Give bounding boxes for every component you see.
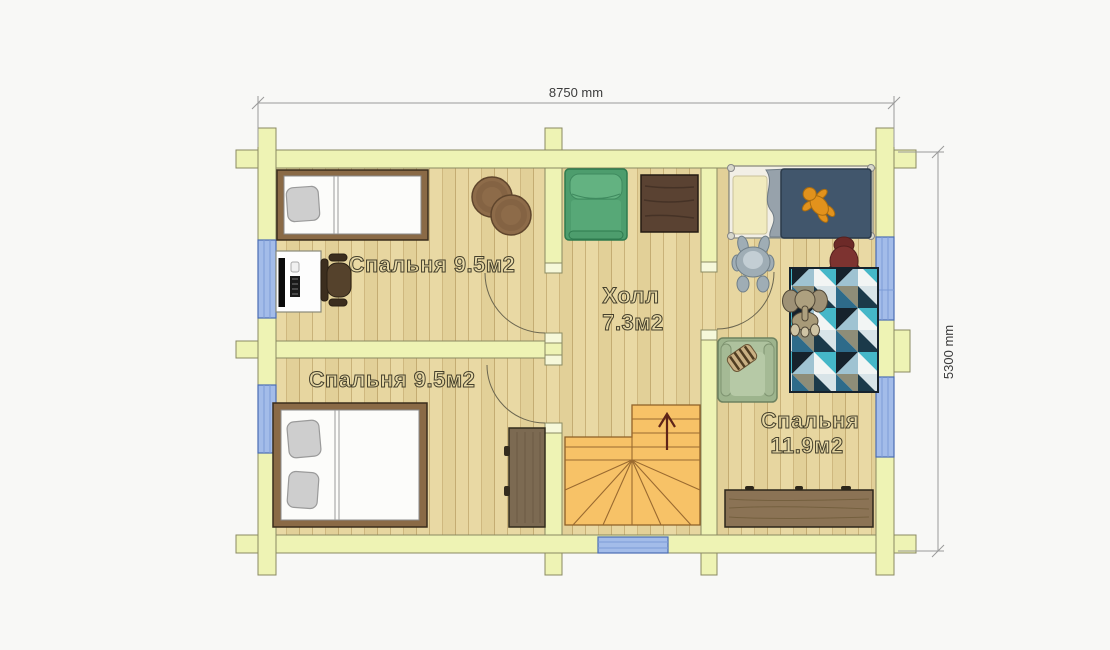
floor-plan-drawing: Спальня 9.5м2 Спальня 9.5м2 Холл 7.3м2 С… [0,0,1110,650]
log-end-left [236,341,258,358]
sideboard [725,486,873,527]
sideboard-knob [841,486,851,490]
room-label-bedroom-top-left: Спальня 9.5м2 [349,252,516,277]
room-label-bedroom-bottom-left: Спальня 9.5м2 [309,367,476,392]
yellow-pillow [733,176,767,234]
green-armchair [565,169,627,240]
sideboard-knob [795,486,803,490]
single-bed [277,170,428,240]
sage-armchair [718,338,777,402]
log-end-bottom-2 [701,553,717,575]
bed-pillow [286,186,320,222]
dimension-width-label: 8750 mm [549,85,603,100]
interior-wall-a1 [545,168,562,263]
child-bed [728,165,875,240]
log-end-bottom-1 [545,553,562,575]
room-label-hall-name: Холл [602,283,659,308]
room-label-bedroom-right-area: 11.9м2 [770,433,843,458]
interior-wall-a3 [545,433,562,535]
window-bottom [598,537,668,553]
wardrobe-handle [504,446,510,456]
interior-wall-c2 [701,340,717,535]
log-end-top [545,128,562,150]
dark-wood-table [641,175,698,232]
keyboard [290,276,300,297]
wardrobe [504,428,545,527]
sideboard-knob [745,486,754,490]
mouse [291,262,299,272]
room-label-bedroom-right-name: Спальня [761,408,860,433]
window-left-1 [258,240,276,318]
bed-pillow [287,471,319,509]
exterior-wall-bottom [236,535,916,553]
wardrobe-handle [504,486,510,496]
interior-wall-c1 [701,168,717,262]
interior-wall-b [276,341,545,358]
dimension-height-label: 5300 mm [941,325,956,379]
desk-with-computer [276,251,321,312]
monitor [279,258,286,307]
interior-wall-a2 [545,343,562,355]
room-label-hall-area: 7.3м2 [602,310,664,335]
bed-pillow [286,420,321,459]
log-end-right [894,330,910,372]
double-bed [273,403,427,527]
floor-plan-canvas: Спальня 9.5м2 Спальня 9.5м2 Холл 7.3м2 С… [0,0,1110,650]
